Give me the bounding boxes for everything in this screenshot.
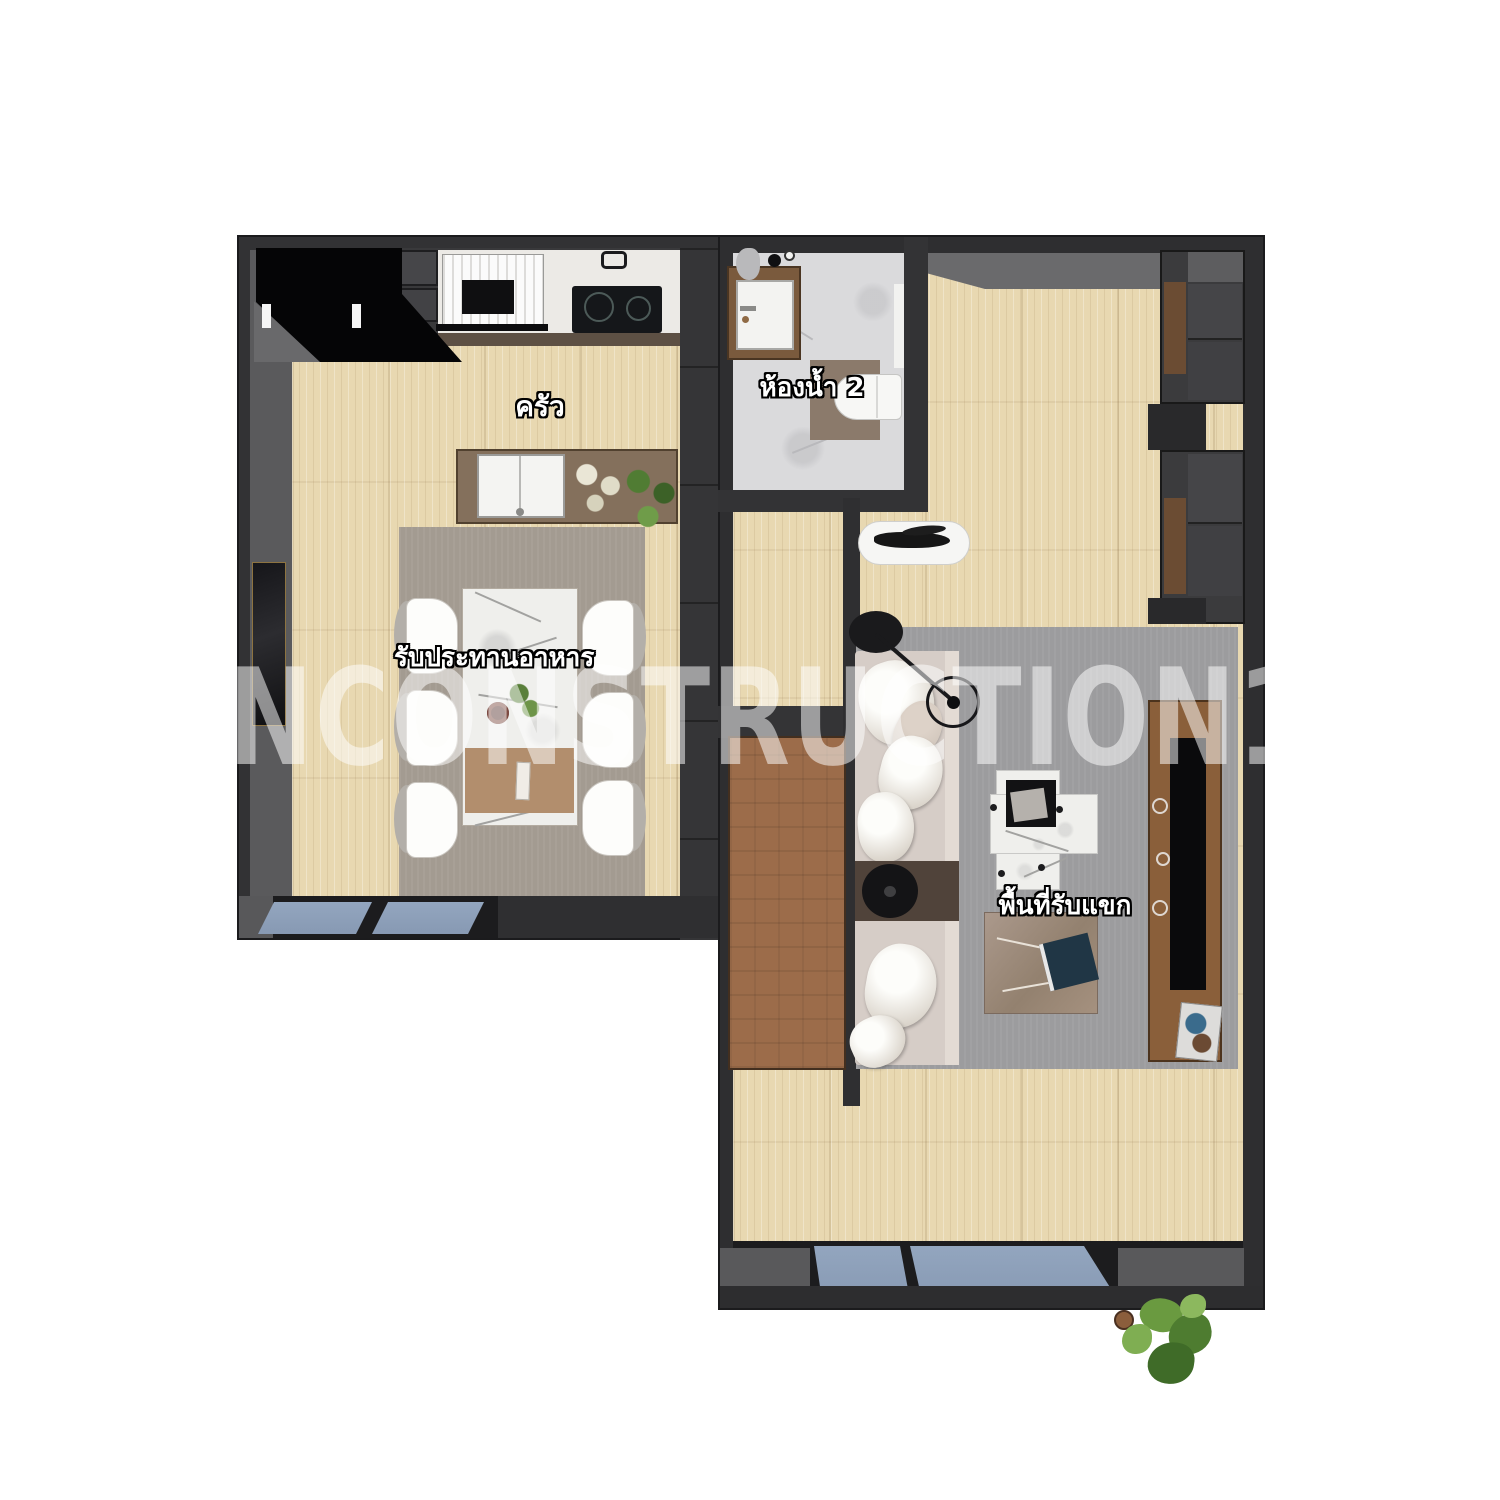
wardrobe-connector (1148, 404, 1206, 450)
wardrobe-lower-door-1 (1188, 454, 1242, 524)
vanity-faucet (740, 306, 756, 311)
toilet-seam (876, 376, 878, 418)
magazine (1175, 1002, 1223, 1062)
table-foot (998, 870, 1005, 877)
right-window-sill-left (720, 1248, 810, 1288)
wardrobe-upper-shelf (1188, 252, 1243, 282)
bath-accessory-black (768, 254, 781, 267)
table-foot (1056, 806, 1063, 813)
vanity-faucet-knob (742, 316, 749, 323)
tv-cable (1156, 852, 1170, 866)
bath-accessory-clock (784, 250, 795, 261)
tv-cable (1152, 900, 1168, 916)
bathroom-bottom-wall (718, 490, 928, 512)
left-window-wall-right (498, 896, 718, 938)
table-foot (1038, 864, 1045, 871)
left-room-right-wall (680, 248, 720, 940)
living-label: พื้นที่รับแขก (995, 892, 1135, 921)
wardrobe-upper-door-1 (1188, 284, 1242, 340)
outdoor-plant-leaf (1122, 1324, 1152, 1354)
fridge-handle-right (352, 304, 361, 328)
wardrobe-lower-wood (1164, 498, 1186, 594)
vanity-sink (736, 280, 794, 350)
counter-front-edge (436, 333, 682, 346)
sofa-side-table-hub (884, 886, 896, 897)
island-plant-green (616, 458, 680, 536)
tv-cable (1152, 798, 1168, 814)
dishes-in-rack (462, 280, 514, 314)
table-foot (990, 804, 997, 811)
left-window-pane-1 (256, 902, 374, 934)
cooktop-burner-right (626, 296, 651, 321)
range-hood-vent (601, 251, 627, 269)
wardrobe-upper-wood (1164, 282, 1186, 374)
fridge-handle-left (262, 304, 271, 328)
bathroom-right-wall (904, 237, 928, 512)
island-sink-divider (519, 456, 521, 516)
kitchen-label: ครัว (490, 392, 590, 423)
cooktop-burner-left (584, 292, 614, 322)
bath-towel (736, 248, 760, 280)
wardrobe-upper-door-2 (1188, 342, 1242, 400)
watermark-text: NCONSTRUCTION1 (228, 640, 1310, 796)
floor-plan-canvas: ครัว รับประทานอาหาร ห้องน้ำ 2 พื้นที่รับ… (0, 0, 1500, 1500)
wardrobe-lower-door-2 (1188, 526, 1242, 596)
dish-rack-bar (436, 324, 548, 331)
island-faucet (516, 508, 524, 516)
wardrobe-lower-stub (1148, 598, 1206, 624)
dining-label: รับประทานอาหาร (394, 644, 584, 673)
bathroom-label: ห้องน้ำ 2 (752, 374, 872, 403)
right-window-sill-right (1118, 1248, 1244, 1288)
